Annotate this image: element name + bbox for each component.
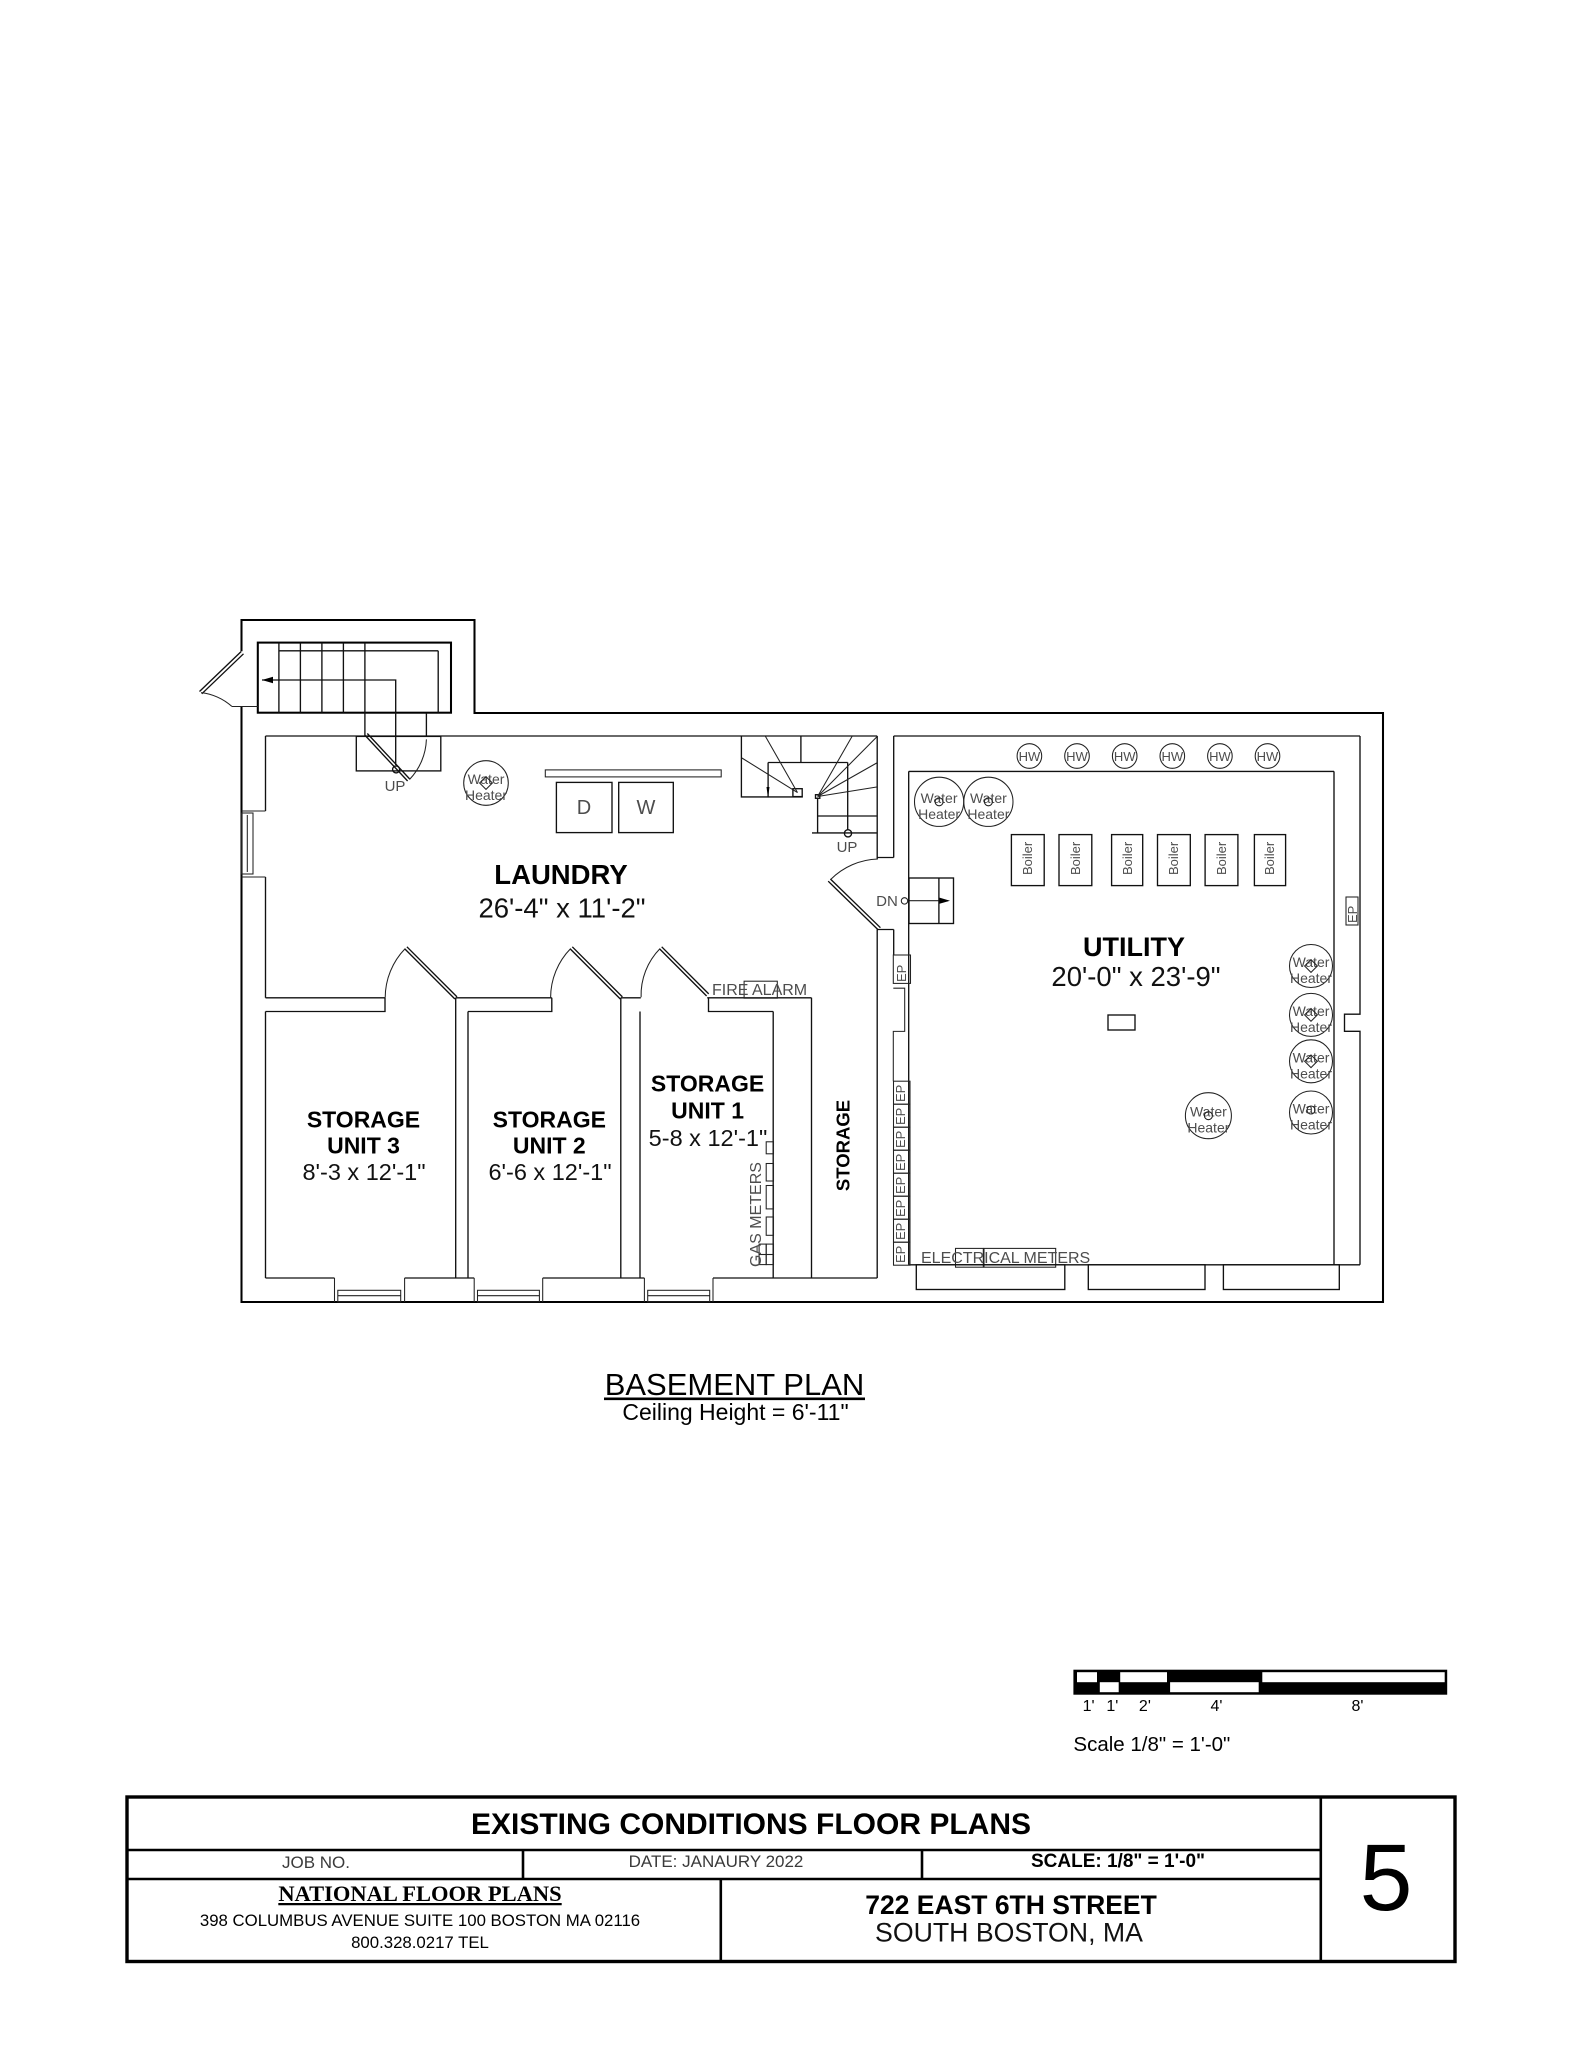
svg-text:LAUNDRY: LAUNDRY xyxy=(494,859,627,890)
svg-text:5-8 x 12'-1": 5-8 x 12'-1" xyxy=(649,1125,768,1151)
svg-text:4': 4' xyxy=(1211,1698,1223,1715)
svg-text:HW: HW xyxy=(1114,749,1136,764)
svg-text:EP: EP xyxy=(893,1085,908,1102)
svg-text:W: W xyxy=(637,797,656,819)
svg-text:Boiler: Boiler xyxy=(1214,841,1229,875)
svg-text:Water: Water xyxy=(1293,954,1330,970)
svg-text:DATE: JANAURY 2022: DATE: JANAURY 2022 xyxy=(629,1852,804,1871)
svg-text:Scale 1/8" = 1'-0": Scale 1/8" = 1'-0" xyxy=(1073,1733,1230,1756)
svg-text:HW: HW xyxy=(1161,749,1183,764)
svg-text:EP: EP xyxy=(893,1108,908,1125)
svg-text:EP: EP xyxy=(894,965,909,982)
svg-text:UNIT 2: UNIT 2 xyxy=(513,1133,586,1159)
svg-text:EXISTING CONDITIONS FLOOR PLAN: EXISTING CONDITIONS FLOOR PLANS xyxy=(471,1808,1031,1841)
svg-text:6'-6 x 12'-1": 6'-6 x 12'-1" xyxy=(488,1159,611,1185)
svg-text:GAS METERS: GAS METERS xyxy=(748,1162,765,1267)
svg-text:UNIT 1: UNIT 1 xyxy=(671,1098,744,1124)
svg-text:JOB NO.: JOB NO. xyxy=(282,1853,350,1872)
svg-text:EP: EP xyxy=(893,1200,908,1217)
svg-text:Boiler: Boiler xyxy=(1262,841,1277,875)
svg-text:STORAGE: STORAGE xyxy=(833,1100,854,1191)
svg-text:EP: EP xyxy=(893,1131,908,1148)
svg-text:Boiler: Boiler xyxy=(1166,841,1181,875)
svg-text:STORAGE: STORAGE xyxy=(493,1107,606,1133)
svg-text:Water: Water xyxy=(1293,1003,1330,1019)
svg-text:DN: DN xyxy=(876,893,898,910)
svg-text:Heater: Heater xyxy=(918,806,960,822)
svg-text:398 COLUMBUS AVENUE SUITE 100: 398 COLUMBUS AVENUE SUITE 100 BOSTON MA … xyxy=(200,1911,640,1930)
svg-text:STORAGE: STORAGE xyxy=(307,1107,420,1133)
svg-text:2': 2' xyxy=(1139,1698,1151,1715)
svg-text:Heater: Heater xyxy=(1187,1120,1229,1136)
svg-text:8'-3 x 12'-1": 8'-3 x 12'-1" xyxy=(302,1159,425,1185)
svg-text:EP: EP xyxy=(893,1223,908,1240)
svg-text:SOUTH BOSTON, MA: SOUTH BOSTON, MA xyxy=(875,1918,1143,1948)
svg-text:SCALE: 1/8" = 1'-0": SCALE: 1/8" = 1'-0" xyxy=(1031,1851,1205,1872)
svg-text:HW: HW xyxy=(1019,749,1041,764)
svg-text:EP: EP xyxy=(893,1177,908,1194)
svg-text:Ceiling Height = 6'-11": Ceiling Height = 6'-11" xyxy=(622,1399,848,1425)
svg-text:Boiler: Boiler xyxy=(1120,841,1135,875)
svg-text:HW: HW xyxy=(1257,749,1279,764)
svg-text:Water: Water xyxy=(1293,1049,1330,1065)
svg-text:26'-4" x 11'-2": 26'-4" x 11'-2" xyxy=(478,893,645,924)
svg-text:Heater: Heater xyxy=(967,806,1009,822)
svg-text:1': 1' xyxy=(1083,1698,1095,1715)
svg-text:Boiler: Boiler xyxy=(1020,841,1035,875)
svg-text:HW: HW xyxy=(1066,749,1088,764)
svg-text:UP: UP xyxy=(837,839,858,856)
svg-text:722 EAST 6TH STREET: 722 EAST 6TH STREET xyxy=(865,1890,1157,1920)
svg-text:20'-0" x 23'-9": 20'-0" x 23'-9" xyxy=(1051,961,1220,992)
svg-text:UTILITY: UTILITY xyxy=(1083,932,1185,962)
svg-text:FIRE ALARM: FIRE ALARM xyxy=(712,982,807,999)
svg-text:EP: EP xyxy=(893,1246,908,1263)
svg-text:Boiler: Boiler xyxy=(1068,841,1083,875)
svg-text:5: 5 xyxy=(1360,1825,1413,1931)
svg-text:1': 1' xyxy=(1106,1698,1118,1715)
svg-text:EP: EP xyxy=(1345,906,1360,923)
svg-text:800.328.0217 TEL: 800.328.0217 TEL xyxy=(351,1933,489,1952)
svg-text:EP: EP xyxy=(893,1154,908,1171)
svg-text:Heater: Heater xyxy=(1290,1117,1332,1133)
svg-text:UP: UP xyxy=(385,778,406,795)
svg-text:BASEMENT PLAN: BASEMENT PLAN xyxy=(605,1367,865,1402)
svg-text:8': 8' xyxy=(1352,1698,1364,1715)
svg-text:D: D xyxy=(577,797,591,819)
svg-text:NATIONAL FLOOR PLANS: NATIONAL FLOOR PLANS xyxy=(278,1881,561,1906)
svg-text:UNIT 3: UNIT 3 xyxy=(327,1133,400,1159)
svg-text:HW: HW xyxy=(1209,749,1231,764)
svg-text:Water: Water xyxy=(468,771,505,787)
svg-text:STORAGE: STORAGE xyxy=(651,1071,764,1097)
